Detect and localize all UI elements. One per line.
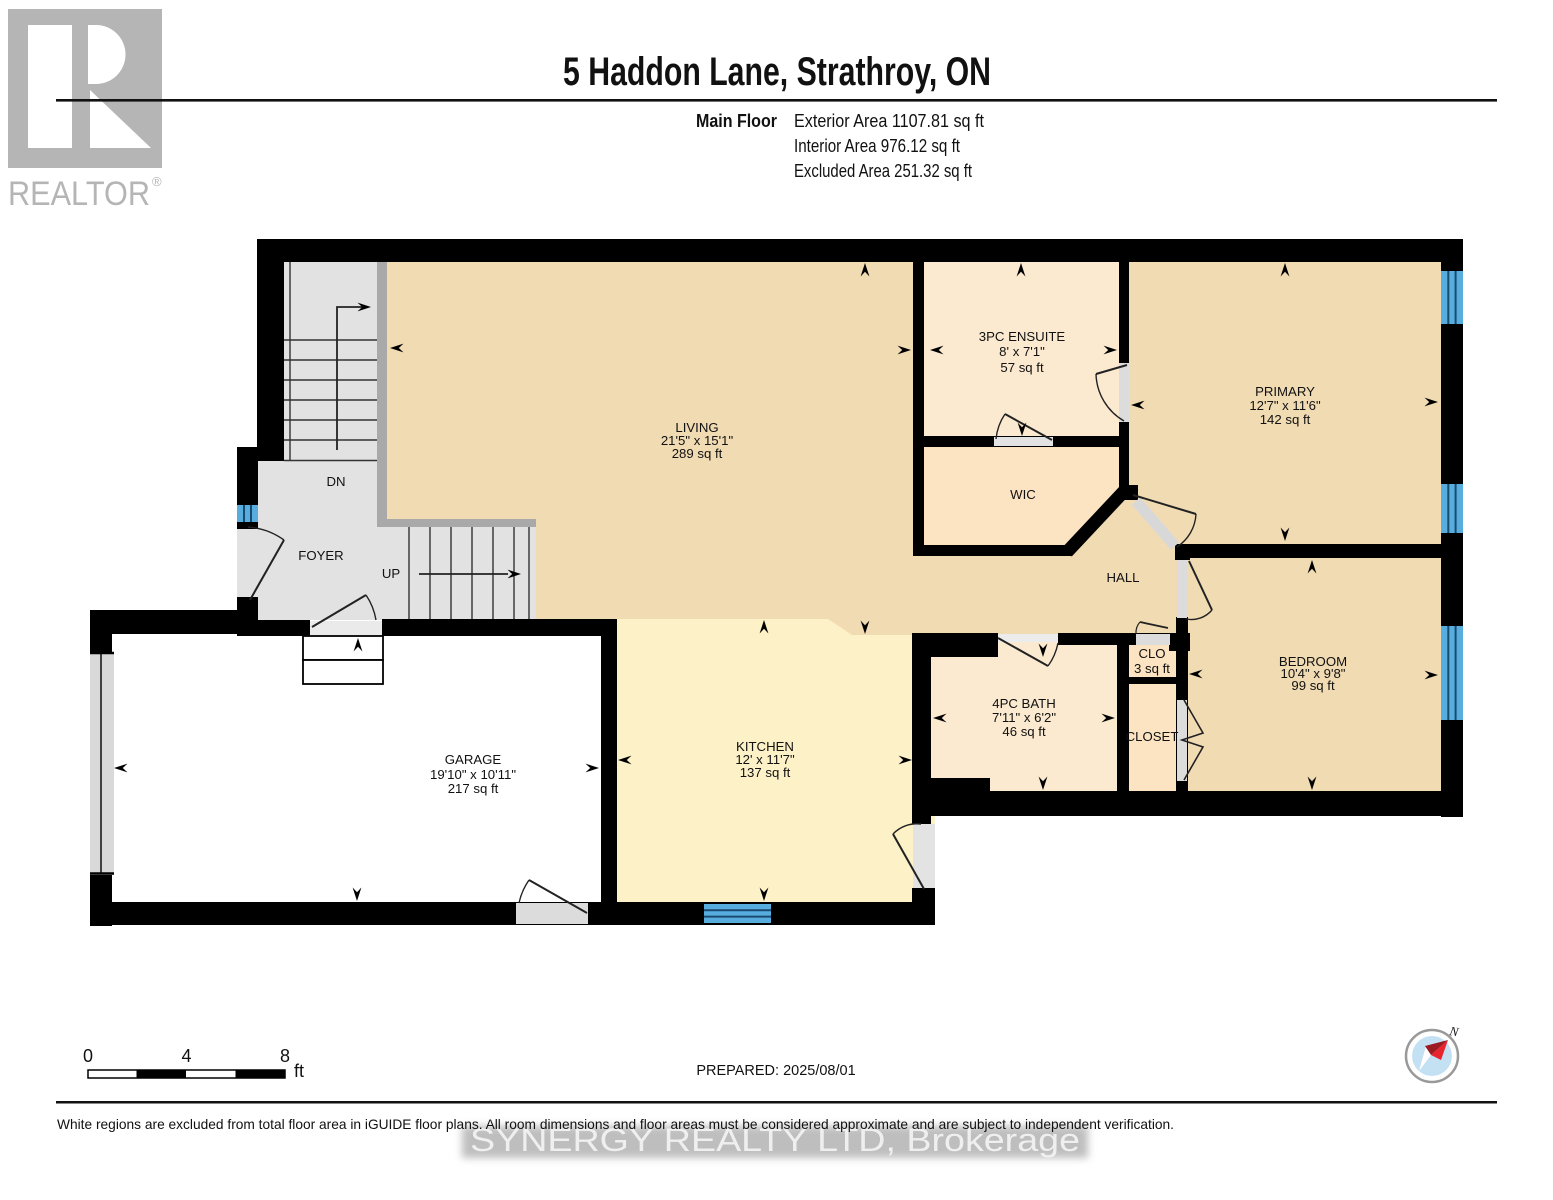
svg-text:HALL: HALL xyxy=(1107,570,1140,585)
svg-text:CLOSET: CLOSET xyxy=(1126,729,1179,744)
svg-text:99 sq ft: 99 sq ft xyxy=(1291,678,1335,693)
svg-text:3 sq ft: 3 sq ft xyxy=(1134,661,1170,676)
svg-text:PREPARED: 2025/08/01: PREPARED: 2025/08/01 xyxy=(696,1063,855,1079)
svg-text:4PC BATH: 4PC BATH xyxy=(992,696,1056,711)
svg-text:White regions are excluded fro: White regions are excluded from total fl… xyxy=(57,1116,1174,1132)
svg-text:137 sq ft: 137 sq ft xyxy=(740,765,791,780)
svg-text:12'7" x 11'6": 12'7" x 11'6" xyxy=(1249,398,1321,413)
svg-text:57 sq ft: 57 sq ft xyxy=(1000,360,1044,375)
svg-text:Exterior Area 1107.81 sq ft: Exterior Area 1107.81 sq ft xyxy=(794,110,984,131)
svg-text:8' x 7'1": 8' x 7'1" xyxy=(999,344,1045,359)
svg-text:REALTOR: REALTOR xyxy=(8,175,150,213)
svg-text:7'11" x 6'2": 7'11" x 6'2" xyxy=(992,710,1056,725)
svg-text:CLO: CLO xyxy=(1138,646,1165,661)
svg-text:PRIMARY: PRIMARY xyxy=(1255,384,1315,399)
svg-text:FOYER: FOYER xyxy=(298,548,343,563)
svg-text:WIC: WIC xyxy=(1010,487,1036,502)
svg-text:46 sq ft: 46 sq ft xyxy=(1002,724,1046,739)
svg-text:GARAGE: GARAGE xyxy=(445,752,502,767)
svg-text:Interior Area 976.12 sq ft: Interior Area 976.12 sq ft xyxy=(794,135,960,156)
svg-text:19'10" x 10'11": 19'10" x 10'11" xyxy=(430,767,516,782)
svg-text:DN: DN xyxy=(326,474,345,489)
svg-text:UP: UP xyxy=(382,566,401,581)
svg-text:®: ® xyxy=(152,174,162,189)
svg-text:ft: ft xyxy=(294,1061,304,1081)
svg-text:142 sq ft: 142 sq ft xyxy=(1260,412,1311,427)
svg-text:3PC ENSUITE: 3PC ENSUITE xyxy=(979,329,1066,344)
svg-text:Main Floor: Main Floor xyxy=(696,110,777,131)
svg-text:Excluded Area 251.32 sq ft: Excluded Area 251.32 sq ft xyxy=(794,160,972,181)
svg-text:4: 4 xyxy=(181,1046,191,1066)
svg-text:0: 0 xyxy=(83,1046,93,1066)
svg-text:8: 8 xyxy=(280,1046,290,1066)
svg-text:289 sq ft: 289 sq ft xyxy=(672,446,723,461)
svg-text:217 sq ft: 217 sq ft xyxy=(448,781,499,796)
svg-text:5 Haddon Lane, Strathroy, ON: 5 Haddon Lane, Strathroy, ON xyxy=(563,50,991,94)
